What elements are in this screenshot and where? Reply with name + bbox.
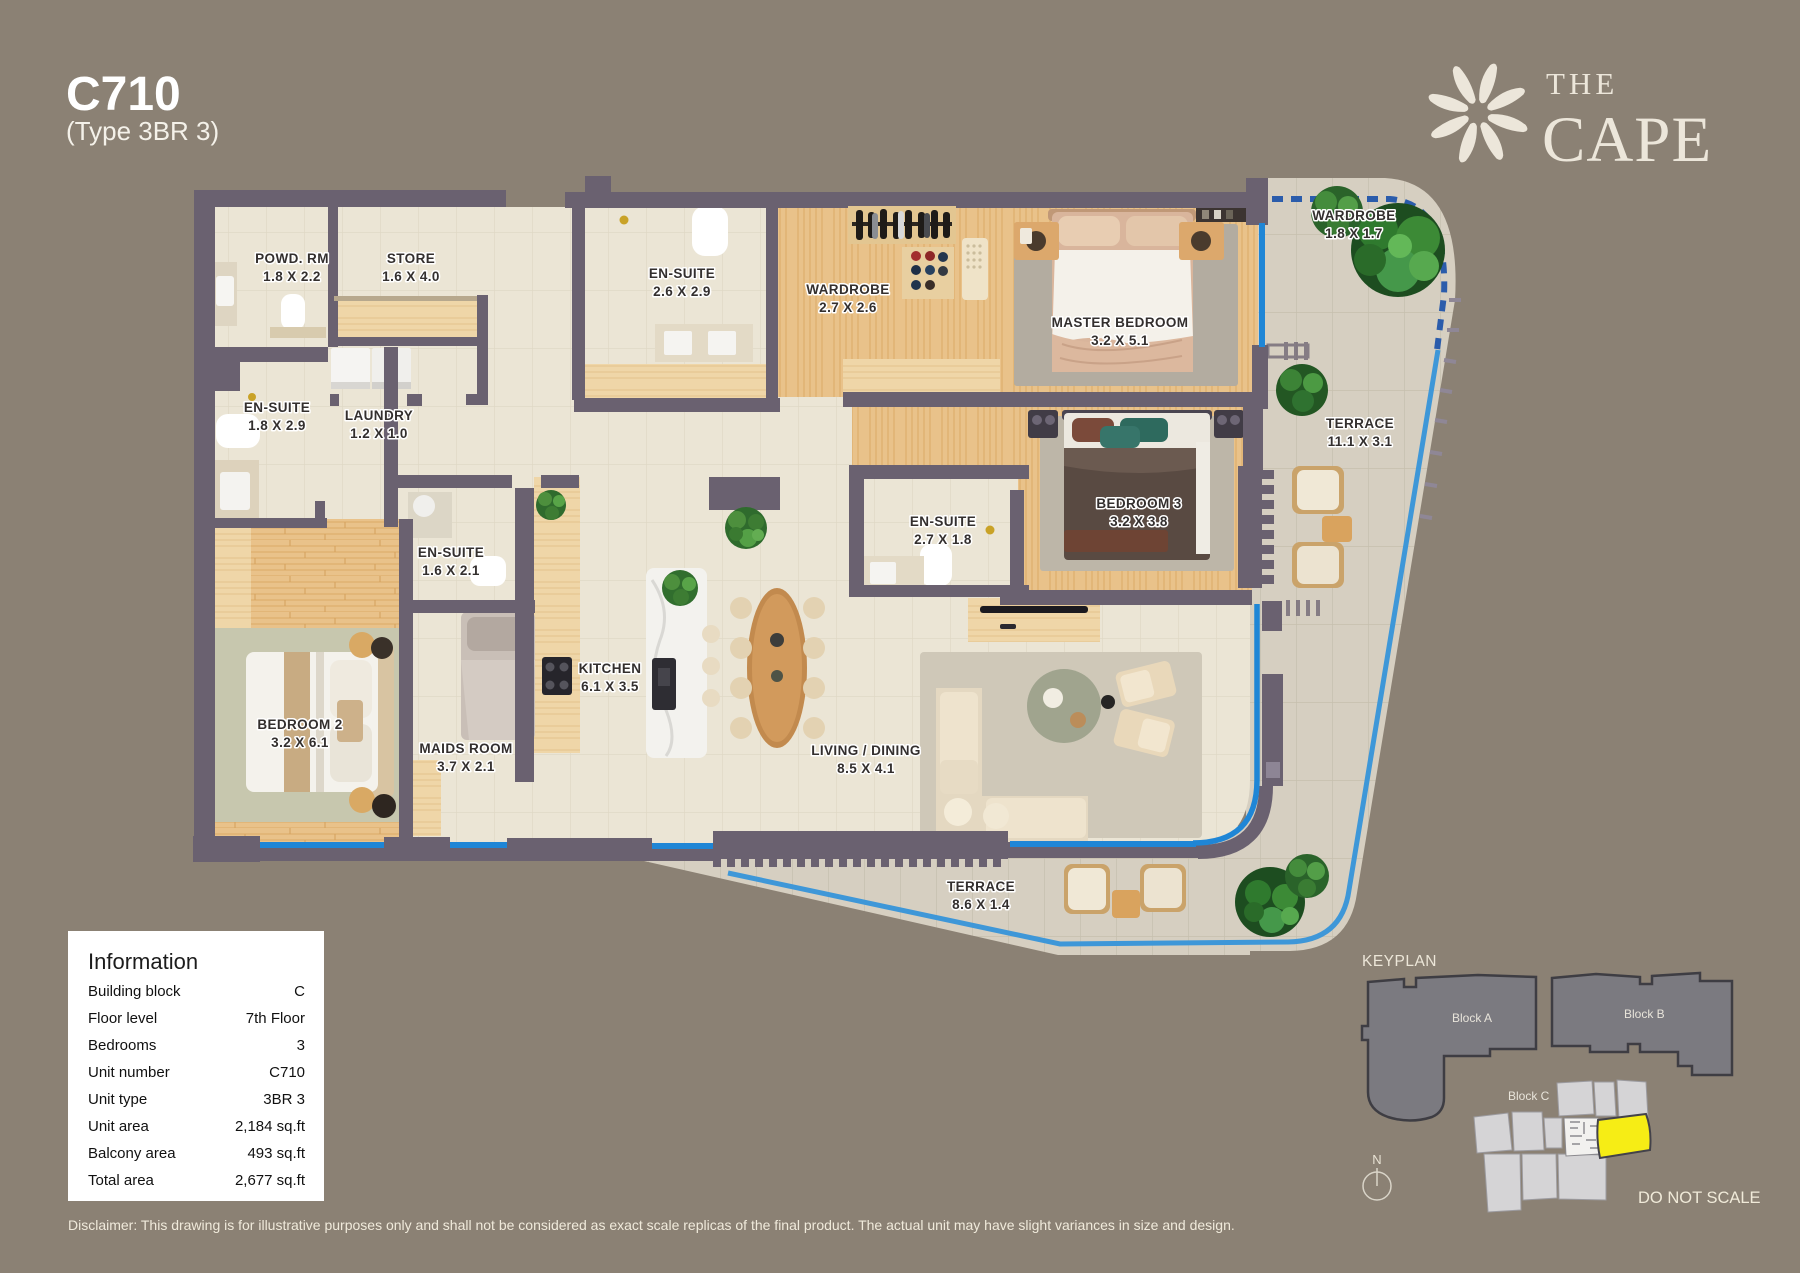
svg-text:WARDROBE: WARDROBE xyxy=(806,282,889,297)
svg-text:Bedrooms: Bedrooms xyxy=(88,1037,156,1054)
svg-text:BEDROOM 3: BEDROOM 3 xyxy=(1096,496,1181,511)
svg-text:11.1 X 3.1: 11.1 X 3.1 xyxy=(1328,434,1393,449)
svg-text:MAIDS ROOM: MAIDS ROOM xyxy=(419,741,512,756)
svg-text:Balcony area: Balcony area xyxy=(88,1145,176,1162)
svg-text:Disclaimer: This drawing is fo: Disclaimer: This drawing is for illustra… xyxy=(68,1217,1235,1233)
svg-text:1.8 X 2.9: 1.8 X 2.9 xyxy=(248,418,306,433)
svg-text:Block B: Block B xyxy=(1624,1007,1665,1021)
svg-text:3.2 X 3.8: 3.2 X 3.8 xyxy=(1110,514,1168,529)
svg-text:3.2 X 6.1: 3.2 X 6.1 xyxy=(271,735,329,750)
svg-text:WARDROBE: WARDROBE xyxy=(1312,208,1395,223)
svg-text:2,677 sq.ft: 2,677 sq.ft xyxy=(235,1172,306,1189)
svg-text:3: 3 xyxy=(297,1037,305,1054)
svg-text:CAPE: CAPE xyxy=(1542,104,1712,176)
svg-text:Block A: Block A xyxy=(1452,1011,1492,1025)
svg-text:BEDROOM 2: BEDROOM 2 xyxy=(257,717,342,732)
svg-text:2.7 X 2.6: 2.7 X 2.6 xyxy=(819,300,877,315)
svg-text:MASTER BEDROOM: MASTER BEDROOM xyxy=(1052,315,1189,330)
svg-text:THE: THE xyxy=(1546,66,1618,101)
svg-text:3.2 X 5.1: 3.2 X 5.1 xyxy=(1091,333,1149,348)
svg-text:3BR 3: 3BR 3 xyxy=(263,1091,305,1108)
svg-text:N: N xyxy=(1372,1152,1381,1167)
svg-text:KITCHEN: KITCHEN xyxy=(579,661,642,676)
svg-text:Building block: Building block xyxy=(88,983,181,1000)
svg-text:EN-SUITE: EN-SUITE xyxy=(649,266,715,281)
svg-text:EN-SUITE: EN-SUITE xyxy=(244,400,310,415)
svg-text:LIVING / DINING: LIVING / DINING xyxy=(811,743,921,758)
svg-text:Total area: Total area xyxy=(88,1172,155,1189)
svg-text:493 sq.ft: 493 sq.ft xyxy=(247,1145,305,1162)
svg-text:8.5 X 4.1: 8.5 X 4.1 xyxy=(837,761,895,776)
svg-text:1.8 X 2.2: 1.8 X 2.2 xyxy=(263,269,321,284)
svg-text:TERRACE: TERRACE xyxy=(1326,416,1394,431)
svg-text:EN-SUITE: EN-SUITE xyxy=(418,545,484,560)
svg-text:2.6 X 2.9: 2.6 X 2.9 xyxy=(653,284,711,299)
svg-text:1.2 X 1.0: 1.2 X 1.0 xyxy=(350,426,408,441)
svg-text:6.1 X 3.5: 6.1 X 3.5 xyxy=(581,679,639,694)
svg-text:1.6 X 2.1: 1.6 X 2.1 xyxy=(422,563,480,578)
svg-text:EN-SUITE: EN-SUITE xyxy=(910,514,976,529)
svg-text:DO NOT SCALE: DO NOT SCALE xyxy=(1638,1189,1761,1207)
svg-text:KEYPLAN: KEYPLAN xyxy=(1362,953,1437,970)
svg-text:Floor level: Floor level xyxy=(88,1010,157,1027)
svg-text:C: C xyxy=(294,983,305,1000)
svg-text:Information: Information xyxy=(88,949,198,974)
svg-text:3.7 X 2.1: 3.7 X 2.1 xyxy=(437,759,495,774)
svg-text:8.6 X 1.4: 8.6 X 1.4 xyxy=(952,897,1010,912)
svg-text:Block C: Block C xyxy=(1508,1089,1550,1103)
svg-text:STORE: STORE xyxy=(387,251,435,266)
svg-text:1.8 X 1.7: 1.8 X 1.7 xyxy=(1325,226,1383,241)
svg-text:Unit area: Unit area xyxy=(88,1118,150,1135)
svg-text:7th Floor: 7th Floor xyxy=(246,1010,305,1027)
svg-text:1.6 X 4.0: 1.6 X 4.0 xyxy=(382,269,440,284)
svg-text:2,184 sq.ft: 2,184 sq.ft xyxy=(235,1118,306,1135)
svg-text:(Type 3BR 3): (Type 3BR 3) xyxy=(66,116,219,146)
svg-text:POWD. RM: POWD. RM xyxy=(255,251,329,266)
svg-text:Unit type: Unit type xyxy=(88,1091,147,1108)
svg-text:Unit number: Unit number xyxy=(88,1064,170,1081)
svg-text:C710: C710 xyxy=(269,1064,305,1081)
svg-text:2.7 X 1.8: 2.7 X 1.8 xyxy=(914,532,972,547)
svg-text:C710: C710 xyxy=(66,68,181,121)
svg-text:LAUNDRY: LAUNDRY xyxy=(345,408,413,423)
svg-text:TERRACE: TERRACE xyxy=(947,879,1015,894)
